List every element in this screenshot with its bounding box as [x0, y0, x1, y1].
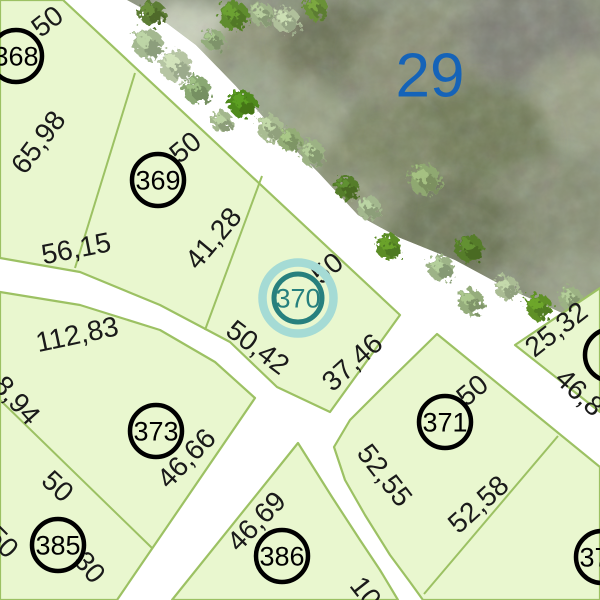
tree-icon: [428, 255, 454, 281]
tree-icon: [495, 276, 519, 300]
tree-icon: [409, 164, 441, 196]
tree-icon: [133, 29, 163, 59]
lot-number-label: 385: [35, 530, 80, 560]
lot-number-label: 386: [259, 541, 304, 571]
tree-icon: [160, 50, 192, 82]
tree-icon: [250, 2, 274, 26]
tree-icon: [278, 128, 302, 152]
tree-icon: [335, 176, 359, 200]
lot-number-label: 369: [135, 165, 180, 195]
tree-icon: [376, 234, 402, 260]
tree-icon: [458, 289, 484, 315]
tree-icon: [139, 0, 165, 26]
map-svg[interactable]: 5065,985041,2856,155050,4237,46112,838,9…: [0, 0, 600, 600]
lot-marker-370[interactable]: 370: [263, 263, 334, 334]
tree-icon: [229, 90, 257, 118]
parcel-map-view[interactable]: 5065,985041,2856,155050,4237,46112,838,9…: [0, 0, 600, 600]
block-number-label: 29: [396, 42, 465, 111]
tree-icon: [357, 196, 381, 220]
lot-number-label: 373: [133, 416, 178, 446]
tree-icon: [211, 111, 233, 133]
tree-icon: [183, 76, 211, 104]
lot-number-label: 372: [579, 542, 600, 572]
lot-number-label: 371: [422, 407, 467, 437]
tree-icon: [274, 8, 300, 34]
lot-number-label: 370: [275, 283, 320, 313]
tree-icon: [299, 140, 325, 166]
lot-number-label: 368: [0, 41, 39, 71]
tree-icon: [456, 235, 484, 263]
tree-icon: [203, 29, 225, 51]
tree-icon: [219, 1, 249, 31]
